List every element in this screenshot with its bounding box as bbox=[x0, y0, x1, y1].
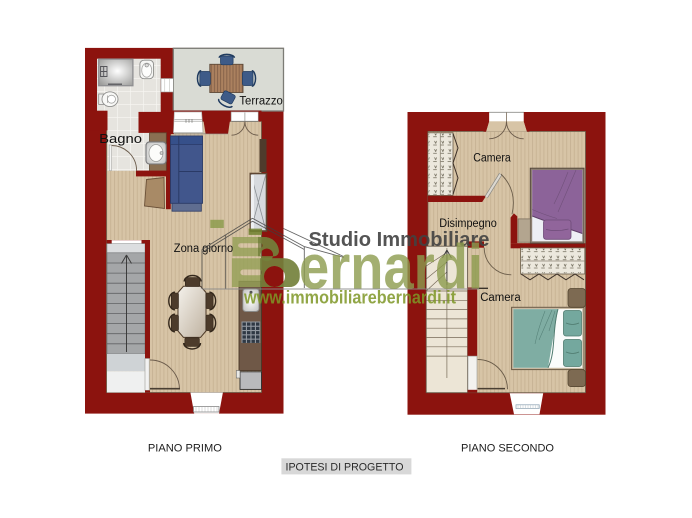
svg-text:Camera: Camera bbox=[473, 152, 511, 164]
svg-text:www.immobiliarebernardi.it: www.immobiliarebernardi.it bbox=[243, 288, 456, 308]
svg-text:PIANO PRIMO: PIANO PRIMO bbox=[148, 443, 222, 455]
svg-text:PIANO SECONDO: PIANO SECONDO bbox=[461, 443, 554, 455]
svg-text:Camera: Camera bbox=[480, 292, 521, 304]
svg-text:Terrazzo: Terrazzo bbox=[239, 96, 282, 108]
svg-text:Bagno: Bagno bbox=[99, 132, 142, 146]
svg-text:IPOTESI DI PROGETTO: IPOTESI DI PROGETTO bbox=[286, 461, 404, 473]
